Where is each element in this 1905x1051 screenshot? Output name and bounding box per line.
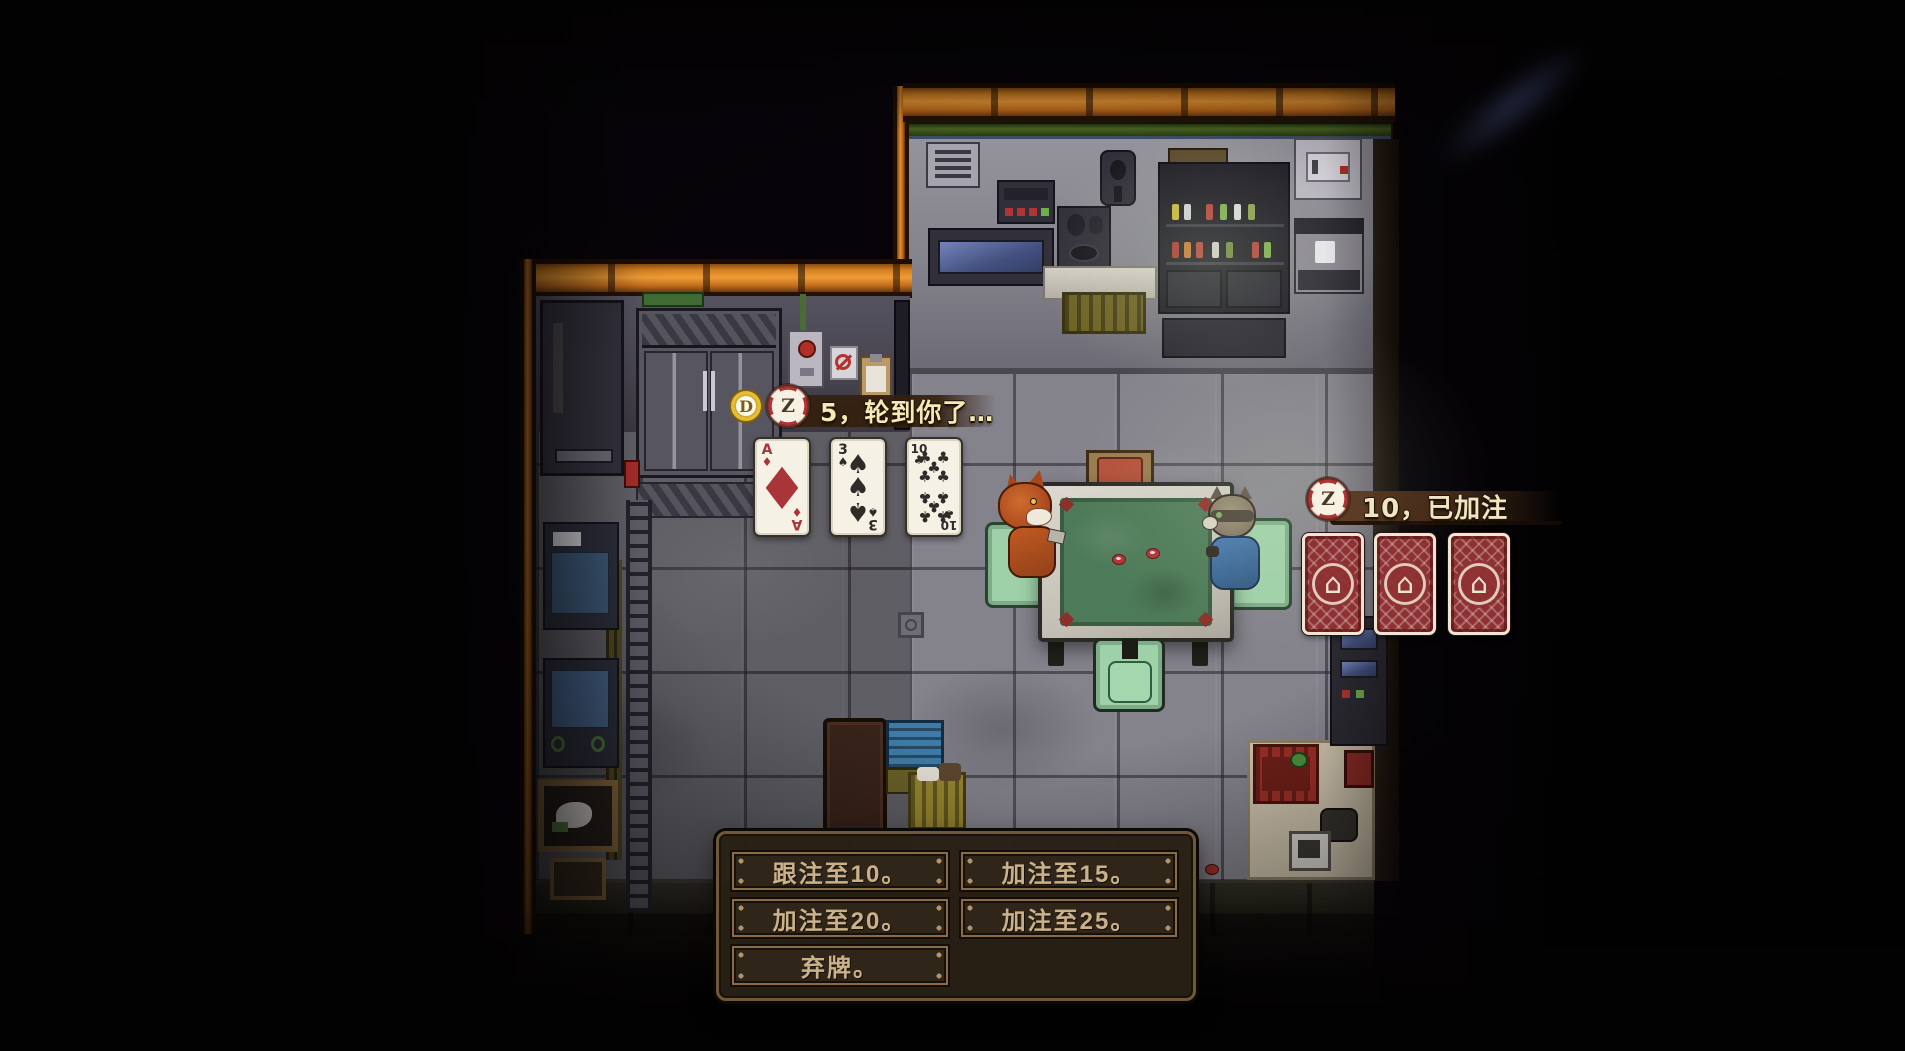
wall-vent [926,142,980,188]
floor-walkway [626,500,652,912]
fox-eye [1030,498,1037,505]
fold-button[interactable]: 弃牌。 [732,946,948,985]
game-screen: 5，轮到你了… D Z A♦ A♦ ♦ 3♠ 3♠ ♠ ♠ ♠ 10♣ 10♣ … [0,0,1905,1051]
fox-muzzle [1026,508,1052,526]
crate-bird [538,780,618,852]
hand-card-three-spades[interactable]: 3♠ 3♠ ♠ ♠ ♠ [829,437,887,537]
card-back-emblem: ⌂ [1461,566,1497,602]
bunk-bed-2 [543,658,619,768]
door-mat [823,718,887,836]
card-back-emblem: ⌂ [1387,566,1423,602]
raccoon-snout [1202,516,1218,530]
raise-15-button[interactable]: 加注至15。 [961,852,1177,890]
alarm-button [788,330,824,388]
raccoon-eye [1216,512,1222,518]
console [997,180,1055,224]
turn-indicator: 5，轮到你了… D Z [731,384,1001,430]
wall-speaker [1100,150,1136,206]
table-chip [1146,548,1160,559]
blue-machine [886,720,944,770]
opponent-card: ⌂ [1374,533,1436,635]
call-button[interactable]: 跟注至10。 [732,852,948,890]
locker [540,300,624,476]
wall-top-trim-right [903,83,1395,122]
red-sofa [1253,744,1319,804]
dark-cabinets [1162,318,1286,358]
bunk-bed-1 [543,522,619,630]
chair-bottom [1093,638,1165,712]
raise-20-button[interactable]: 加注至20。 [732,899,948,937]
bet-indicator-band: 10，已加注 [1330,491,1562,525]
chip-icon: Z [1306,477,1350,521]
player-raccoon [1202,486,1268,594]
hand-card-ace-diamonds[interactable]: A♦ A♦ ♦ [753,437,811,537]
table-chip [1112,554,1126,565]
player-fox [998,472,1070,584]
white-device [1289,831,1331,871]
coffee-station [1294,218,1364,294]
bar-shelf [1158,162,1290,314]
yellow-crate [1062,292,1146,334]
opponent-card: ⌂ [1302,533,1364,635]
action-panel: 跟注至10。 加注至15。 加注至20。 加注至25。 弃牌。 [716,831,1196,1001]
alarm-cable [800,294,806,332]
floor-drain [898,612,924,638]
trash-basket [908,772,966,830]
turn-indicator-band: 5，轮到你了… [790,395,996,427]
coin-icon: D [731,391,761,421]
kettle-station [1057,206,1111,270]
floor-chip [1205,864,1219,875]
door-sign [642,292,704,307]
hand-card-ten-clubs[interactable]: 10♣ 10♣ ♣ ♣ ♣ ♣ ♣ ♣ ♣ ♣ ♣ ♣ [905,437,963,537]
right-machines [1330,616,1388,746]
no-smoking-sign [830,346,858,380]
opponent-card: ⌂ [1448,533,1510,635]
wall-panel [1294,138,1362,200]
stool [550,858,606,900]
card-back-emblem: ⌂ [1315,566,1351,602]
table-felt [1060,498,1212,626]
raise-25-button[interactable]: 加注至25。 [961,899,1177,937]
green-ball [1290,752,1308,768]
wall-left-trim [520,259,536,934]
wall-base-line [909,368,1373,374]
wall-top-trim-left [520,259,912,298]
lens-flare-streak [1424,28,1602,181]
machine-screen [928,228,1054,286]
red-basket [1344,750,1374,788]
red-canister [624,460,640,488]
chip-icon: Z [766,384,810,428]
wall-pipe [909,122,1391,139]
raccoon-paws [1206,546,1219,557]
bet-indicator: 10，已加注 Z [1306,477,1586,527]
